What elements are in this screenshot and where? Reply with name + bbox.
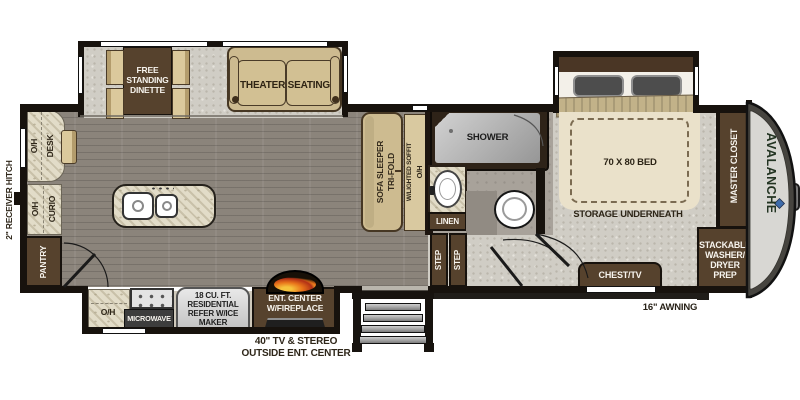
step-label: STEP xyxy=(433,236,445,284)
wall-top-middle xyxy=(346,104,558,112)
window xyxy=(586,286,656,293)
kingpin-hitch-icon xyxy=(780,184,799,210)
dinette-label: FREE STANDING DINETTE xyxy=(126,66,168,95)
trifold-label: TRI-FOLD xyxy=(385,117,397,227)
pillow-icon xyxy=(573,75,624,97)
storage-underneath-label: STORAGE UNDERNEATH xyxy=(566,209,690,220)
shower-label: SHOWER xyxy=(467,133,509,144)
window xyxy=(100,41,208,47)
dinette-chair xyxy=(106,88,124,119)
fireplace-flame-icon xyxy=(274,277,316,292)
step-label: STEP xyxy=(452,236,464,284)
wall-bottom-left xyxy=(20,286,84,293)
sofa-back xyxy=(365,116,374,228)
microwave: MICROWAVE xyxy=(124,309,174,329)
shower-pan: SHOWER xyxy=(435,113,540,163)
pantry-label: PANTRY xyxy=(37,239,49,285)
kitchen-slide-wall-right xyxy=(334,286,340,334)
chest-tv-cabinet: CHEST/TV xyxy=(578,262,662,289)
bath-faucet-icon xyxy=(429,186,435,195)
pillow-icon xyxy=(631,75,682,97)
desk-label: DESK xyxy=(44,116,56,176)
cooktop-icon xyxy=(130,288,174,309)
shower-drain-icon xyxy=(449,129,453,133)
faucet-icon xyxy=(150,186,174,191)
window xyxy=(343,55,348,93)
window xyxy=(20,128,26,168)
cup-holder-icon xyxy=(232,96,239,103)
soffit-oh-label: O/H xyxy=(414,116,426,228)
window xyxy=(222,41,328,47)
window xyxy=(412,105,428,111)
wall-top-right xyxy=(695,105,753,113)
curio-label: CURIO xyxy=(46,186,58,232)
linen-cabinet: LINEN xyxy=(428,212,467,231)
awning-label: 16" AWNING xyxy=(628,303,712,314)
receiver-hitch-label: 2" RECEIVER HITCH xyxy=(3,145,15,255)
step-tread xyxy=(363,314,423,322)
sink-drain-icon xyxy=(162,201,172,211)
window xyxy=(554,66,559,96)
refrigerator-label: 18 CU. FT. RESIDENTIAL REFER W/ICE MAKER xyxy=(187,292,238,328)
linen-label: LINEN xyxy=(436,217,459,226)
counter-divider xyxy=(91,303,127,305)
bath-bedroom-wall xyxy=(536,168,545,234)
dinette-chair xyxy=(172,88,190,119)
brand-logo-text: AVALANCHE xyxy=(764,125,778,221)
wall-bottom-middle xyxy=(334,286,362,293)
microwave-label: MICROWAVE xyxy=(127,315,170,323)
outside-entertainment-caption: 40" TV & STEREO OUTSIDE ENT. CENTER xyxy=(216,336,376,359)
step-tread xyxy=(361,325,425,333)
window xyxy=(694,66,699,96)
bath-sink-bowl-icon xyxy=(439,178,456,200)
curio-divider xyxy=(43,186,45,233)
wall-top-left xyxy=(20,104,80,112)
desk-divider xyxy=(41,112,43,180)
theater-seating-label: THEATER SEATING xyxy=(230,80,340,92)
toilet-alcove xyxy=(466,191,497,235)
rv-floor-plan: FREE STANDING DINETTE SHOWER LINEN xyxy=(0,0,800,400)
step-foot xyxy=(424,343,434,352)
dinette-chair xyxy=(172,50,190,85)
dinette-table: FREE STANDING DINETTE xyxy=(123,47,172,115)
step-tread xyxy=(365,303,421,311)
washer-dryer-prep: STACKABLE WASHER/ DRYER PREP xyxy=(697,227,753,293)
cup-holder-icon xyxy=(332,96,339,103)
washer-dryer-label: STACKABLE WASHER/ DRYER PREP xyxy=(699,240,751,280)
bed-slide-wall-top xyxy=(553,51,699,57)
window xyxy=(78,56,83,94)
dinette-chair xyxy=(106,50,124,85)
sink-drain-icon xyxy=(132,200,144,212)
wall-right xyxy=(746,100,752,298)
kitchen-oh-label: O/H xyxy=(90,308,126,318)
desk-chair xyxy=(61,130,77,164)
window xyxy=(102,328,146,334)
steps-top-rail xyxy=(352,291,434,299)
desk-oh-label: O/H xyxy=(28,116,40,176)
toilet-seat-icon xyxy=(502,197,527,221)
bed-size-label: 70 X 80 BED xyxy=(575,158,685,169)
chest-tv-label: CHEST/TV xyxy=(599,270,642,280)
bed-headboard xyxy=(559,57,693,72)
curio-oh-label: O/H xyxy=(29,186,41,232)
entertainment-center-label: ENT. CENTER W/FIREPLACE xyxy=(267,294,323,314)
shower-head-icon xyxy=(435,113,449,127)
master-closet-label: MASTER CLOSET xyxy=(728,108,740,224)
